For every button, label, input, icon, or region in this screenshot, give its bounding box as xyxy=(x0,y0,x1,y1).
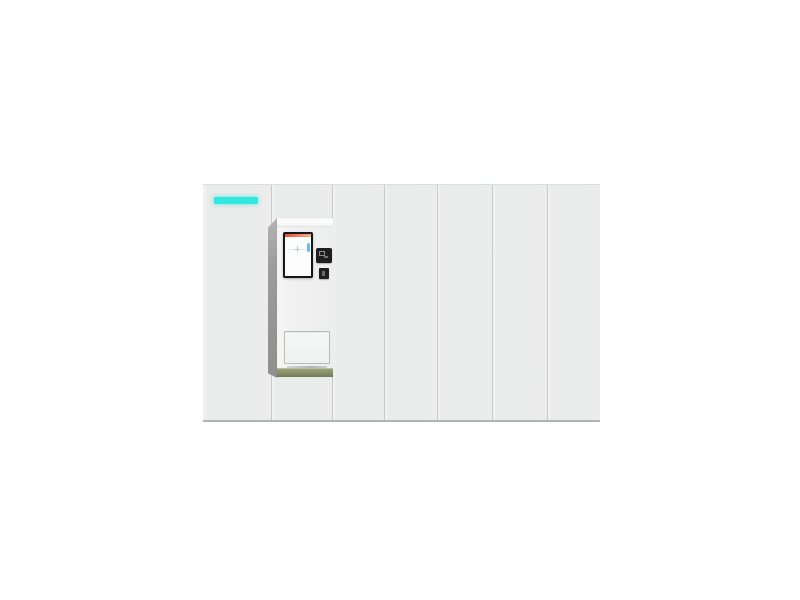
locker-door-7 xyxy=(548,185,600,420)
screen-center-icon xyxy=(294,246,300,252)
led-strip xyxy=(214,197,258,204)
locker-bank xyxy=(203,184,600,422)
kiosk-base xyxy=(277,368,333,377)
locker-door-3 xyxy=(333,185,385,420)
kiosk-top-band xyxy=(277,218,333,227)
locker-door-4 xyxy=(385,185,438,420)
parcel-drawer xyxy=(284,331,330,364)
screen-header-bar xyxy=(285,234,311,237)
screen-display xyxy=(285,234,311,276)
kiosk-side-panel xyxy=(268,218,277,378)
scanner-glyph-icon xyxy=(319,251,325,256)
kiosk-terminal xyxy=(277,218,333,377)
card-reader xyxy=(319,268,329,279)
locker-door-1 xyxy=(203,185,272,420)
kiosk-touchscreen xyxy=(283,232,313,278)
card-slot-icon xyxy=(322,271,325,276)
product-render-scene xyxy=(0,0,800,600)
screen-accent-button xyxy=(307,243,310,252)
locker-door-6 xyxy=(493,185,548,420)
qr-scanner xyxy=(316,248,332,263)
locker-door-5 xyxy=(438,185,493,420)
